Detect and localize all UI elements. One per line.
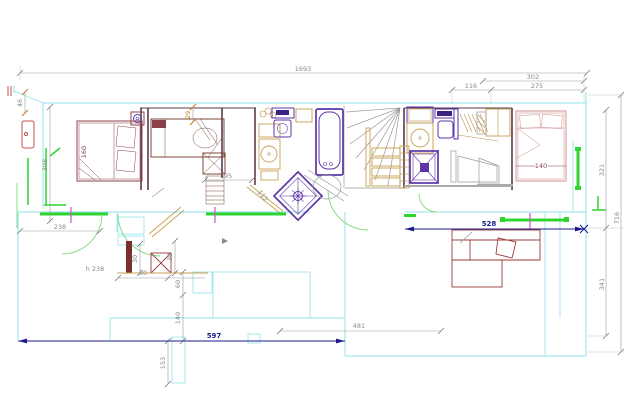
dim-step-b-label: 140: [174, 312, 182, 324]
dim-right-seg-b-label: 275: [531, 82, 543, 90]
bed-left-size-label: 160: [80, 146, 88, 158]
dim-door-diagonal-label: 112: [256, 188, 270, 203]
bathroom-main: [272, 108, 348, 220]
dim-left-height-label: 308: [41, 159, 49, 171]
service-boxes: [118, 217, 260, 383]
dim-annex-width-label: 238: [54, 223, 66, 231]
wc-column-unit: [259, 108, 280, 180]
dimension-lines: [17, 66, 624, 387]
windows: [17, 147, 606, 229]
dim-window-bold-label: 528: [482, 220, 497, 228]
height-note-label: h 238: [86, 265, 105, 273]
bed-double-right: [516, 111, 566, 181]
dim-pillar-label: 153: [159, 357, 167, 369]
stairs: [346, 108, 400, 186]
dim-step-a-label: 60: [174, 280, 182, 288]
dim-right-seg-a-label: 116: [465, 82, 477, 90]
dim-overall-label: 1693: [295, 65, 312, 73]
bed-right-size-label: 140: [535, 162, 547, 170]
dim-left-small-label: 46: [16, 99, 24, 107]
dim-bottom-bold-label: 597: [207, 332, 222, 340]
dim-gap-label: 29: [184, 111, 192, 119]
floor-plan-page: 1693 302 116 275 321 716 341 46 308 238 …: [0, 0, 640, 420]
radiator: [8, 86, 34, 148]
dim-niche-width-label: 50: [139, 269, 147, 277]
dim-side-lower-label: 341: [598, 278, 606, 290]
dim-niche-depth-a-label: 30: [131, 255, 139, 263]
dim-living-label: 481: [353, 322, 365, 330]
dim-right-top-label: 302: [527, 73, 539, 81]
marker-triangle: [222, 238, 228, 244]
wardrobe-right: [477, 109, 513, 185]
dim-corridor-label: 95: [224, 172, 232, 180]
dim-side-total-label: 716: [613, 212, 621, 224]
dim-side-upper-label: 321: [598, 164, 606, 176]
floor-plan-canvas: 1693 302 116 275 321 716 341 46 308 238 …: [0, 0, 640, 420]
bathroom-second: [400, 107, 498, 188]
bed-single: [151, 119, 224, 157]
dim-niche-depth-b-label: 30: [166, 253, 174, 261]
